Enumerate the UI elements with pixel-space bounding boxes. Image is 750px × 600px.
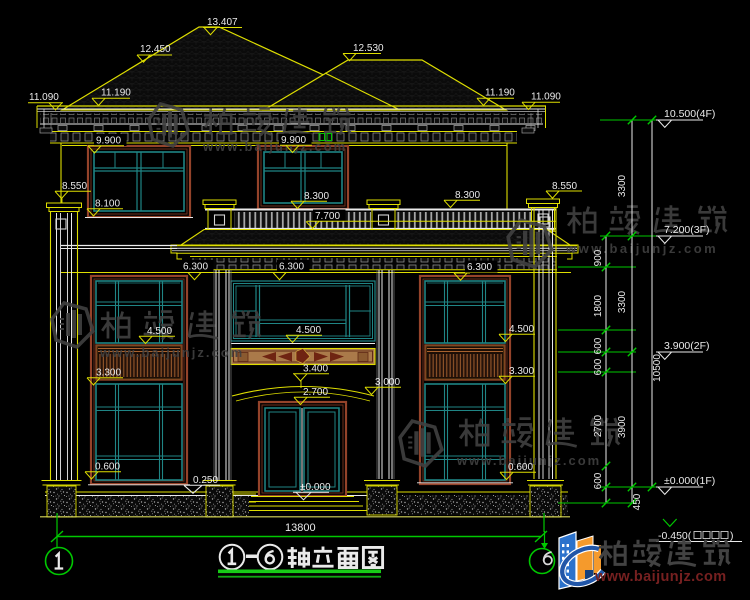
svg-text:12.450: 12.450 bbox=[140, 44, 171, 55]
svg-text:6.300: 6.300 bbox=[467, 262, 492, 273]
svg-text:2.700: 2.700 bbox=[303, 387, 328, 398]
svg-text:600: 600 bbox=[593, 337, 604, 354]
svg-text:0.600: 0.600 bbox=[508, 462, 533, 473]
svg-text:9.900: 9.900 bbox=[96, 136, 121, 147]
svg-text:3.900(2F): 3.900(2F) bbox=[664, 340, 710, 352]
svg-text:8.550: 8.550 bbox=[552, 181, 577, 192]
svg-text:7.700: 7.700 bbox=[315, 211, 340, 222]
svg-text:600: 600 bbox=[593, 358, 604, 375]
svg-text:13800: 13800 bbox=[285, 522, 316, 534]
svg-text:6.300: 6.300 bbox=[183, 262, 208, 273]
svg-text:13.407: 13.407 bbox=[207, 17, 238, 28]
svg-text:www.baijunjz.com: www.baijunjz.com bbox=[594, 569, 727, 585]
svg-text:8.100: 8.100 bbox=[95, 199, 120, 210]
svg-text:8.550: 8.550 bbox=[62, 181, 87, 192]
svg-text:8.300: 8.300 bbox=[304, 191, 329, 202]
svg-text:4.500: 4.500 bbox=[296, 325, 321, 336]
svg-text:3.400: 3.400 bbox=[303, 364, 328, 375]
svg-text:www.baijunjz.com: www.baijunjz.com bbox=[99, 345, 244, 360]
svg-text:3.000: 3.000 bbox=[375, 377, 400, 388]
svg-text:www.baijunjz.com: www.baijunjz.com bbox=[202, 139, 347, 154]
svg-text:11.090: 11.090 bbox=[531, 92, 561, 103]
svg-text:3300: 3300 bbox=[617, 174, 628, 197]
svg-text:6.300: 6.300 bbox=[279, 262, 304, 273]
svg-text:10.500(4F): 10.500(4F) bbox=[664, 108, 715, 120]
svg-text:±0.000: ±0.000 bbox=[300, 482, 331, 493]
svg-text:900: 900 bbox=[593, 249, 604, 266]
svg-text:11.190: 11.190 bbox=[101, 88, 131, 99]
svg-text:0.250: 0.250 bbox=[193, 475, 218, 486]
svg-text:3.300: 3.300 bbox=[96, 368, 121, 379]
svg-text:1800: 1800 bbox=[593, 294, 604, 317]
svg-text:8.300: 8.300 bbox=[455, 190, 480, 201]
svg-text:600: 600 bbox=[593, 472, 604, 489]
svg-text:10500: 10500 bbox=[652, 354, 663, 382]
svg-text:4.500: 4.500 bbox=[147, 326, 172, 337]
svg-text:11.090: 11.090 bbox=[29, 92, 59, 103]
svg-text:12.530: 12.530 bbox=[353, 43, 384, 54]
svg-text:): ) bbox=[730, 530, 734, 542]
svg-text:3.300: 3.300 bbox=[509, 366, 534, 377]
svg-text:www.baijunjz.com: www.baijunjz.com bbox=[565, 241, 718, 256]
svg-text:4.500: 4.500 bbox=[509, 324, 534, 335]
svg-text:2700: 2700 bbox=[593, 414, 604, 437]
svg-text:3900: 3900 bbox=[617, 415, 628, 438]
svg-text:450: 450 bbox=[632, 493, 643, 510]
svg-text:11.190: 11.190 bbox=[485, 88, 515, 99]
svg-text:0.600: 0.600 bbox=[95, 462, 120, 473]
svg-text:±0.000(1F): ±0.000(1F) bbox=[664, 475, 715, 487]
svg-text:9.900: 9.900 bbox=[281, 135, 306, 146]
svg-text:7.200(3F): 7.200(3F) bbox=[664, 224, 710, 236]
svg-text:-0.450(: -0.450( bbox=[658, 530, 692, 542]
svg-text:3300: 3300 bbox=[617, 290, 628, 313]
